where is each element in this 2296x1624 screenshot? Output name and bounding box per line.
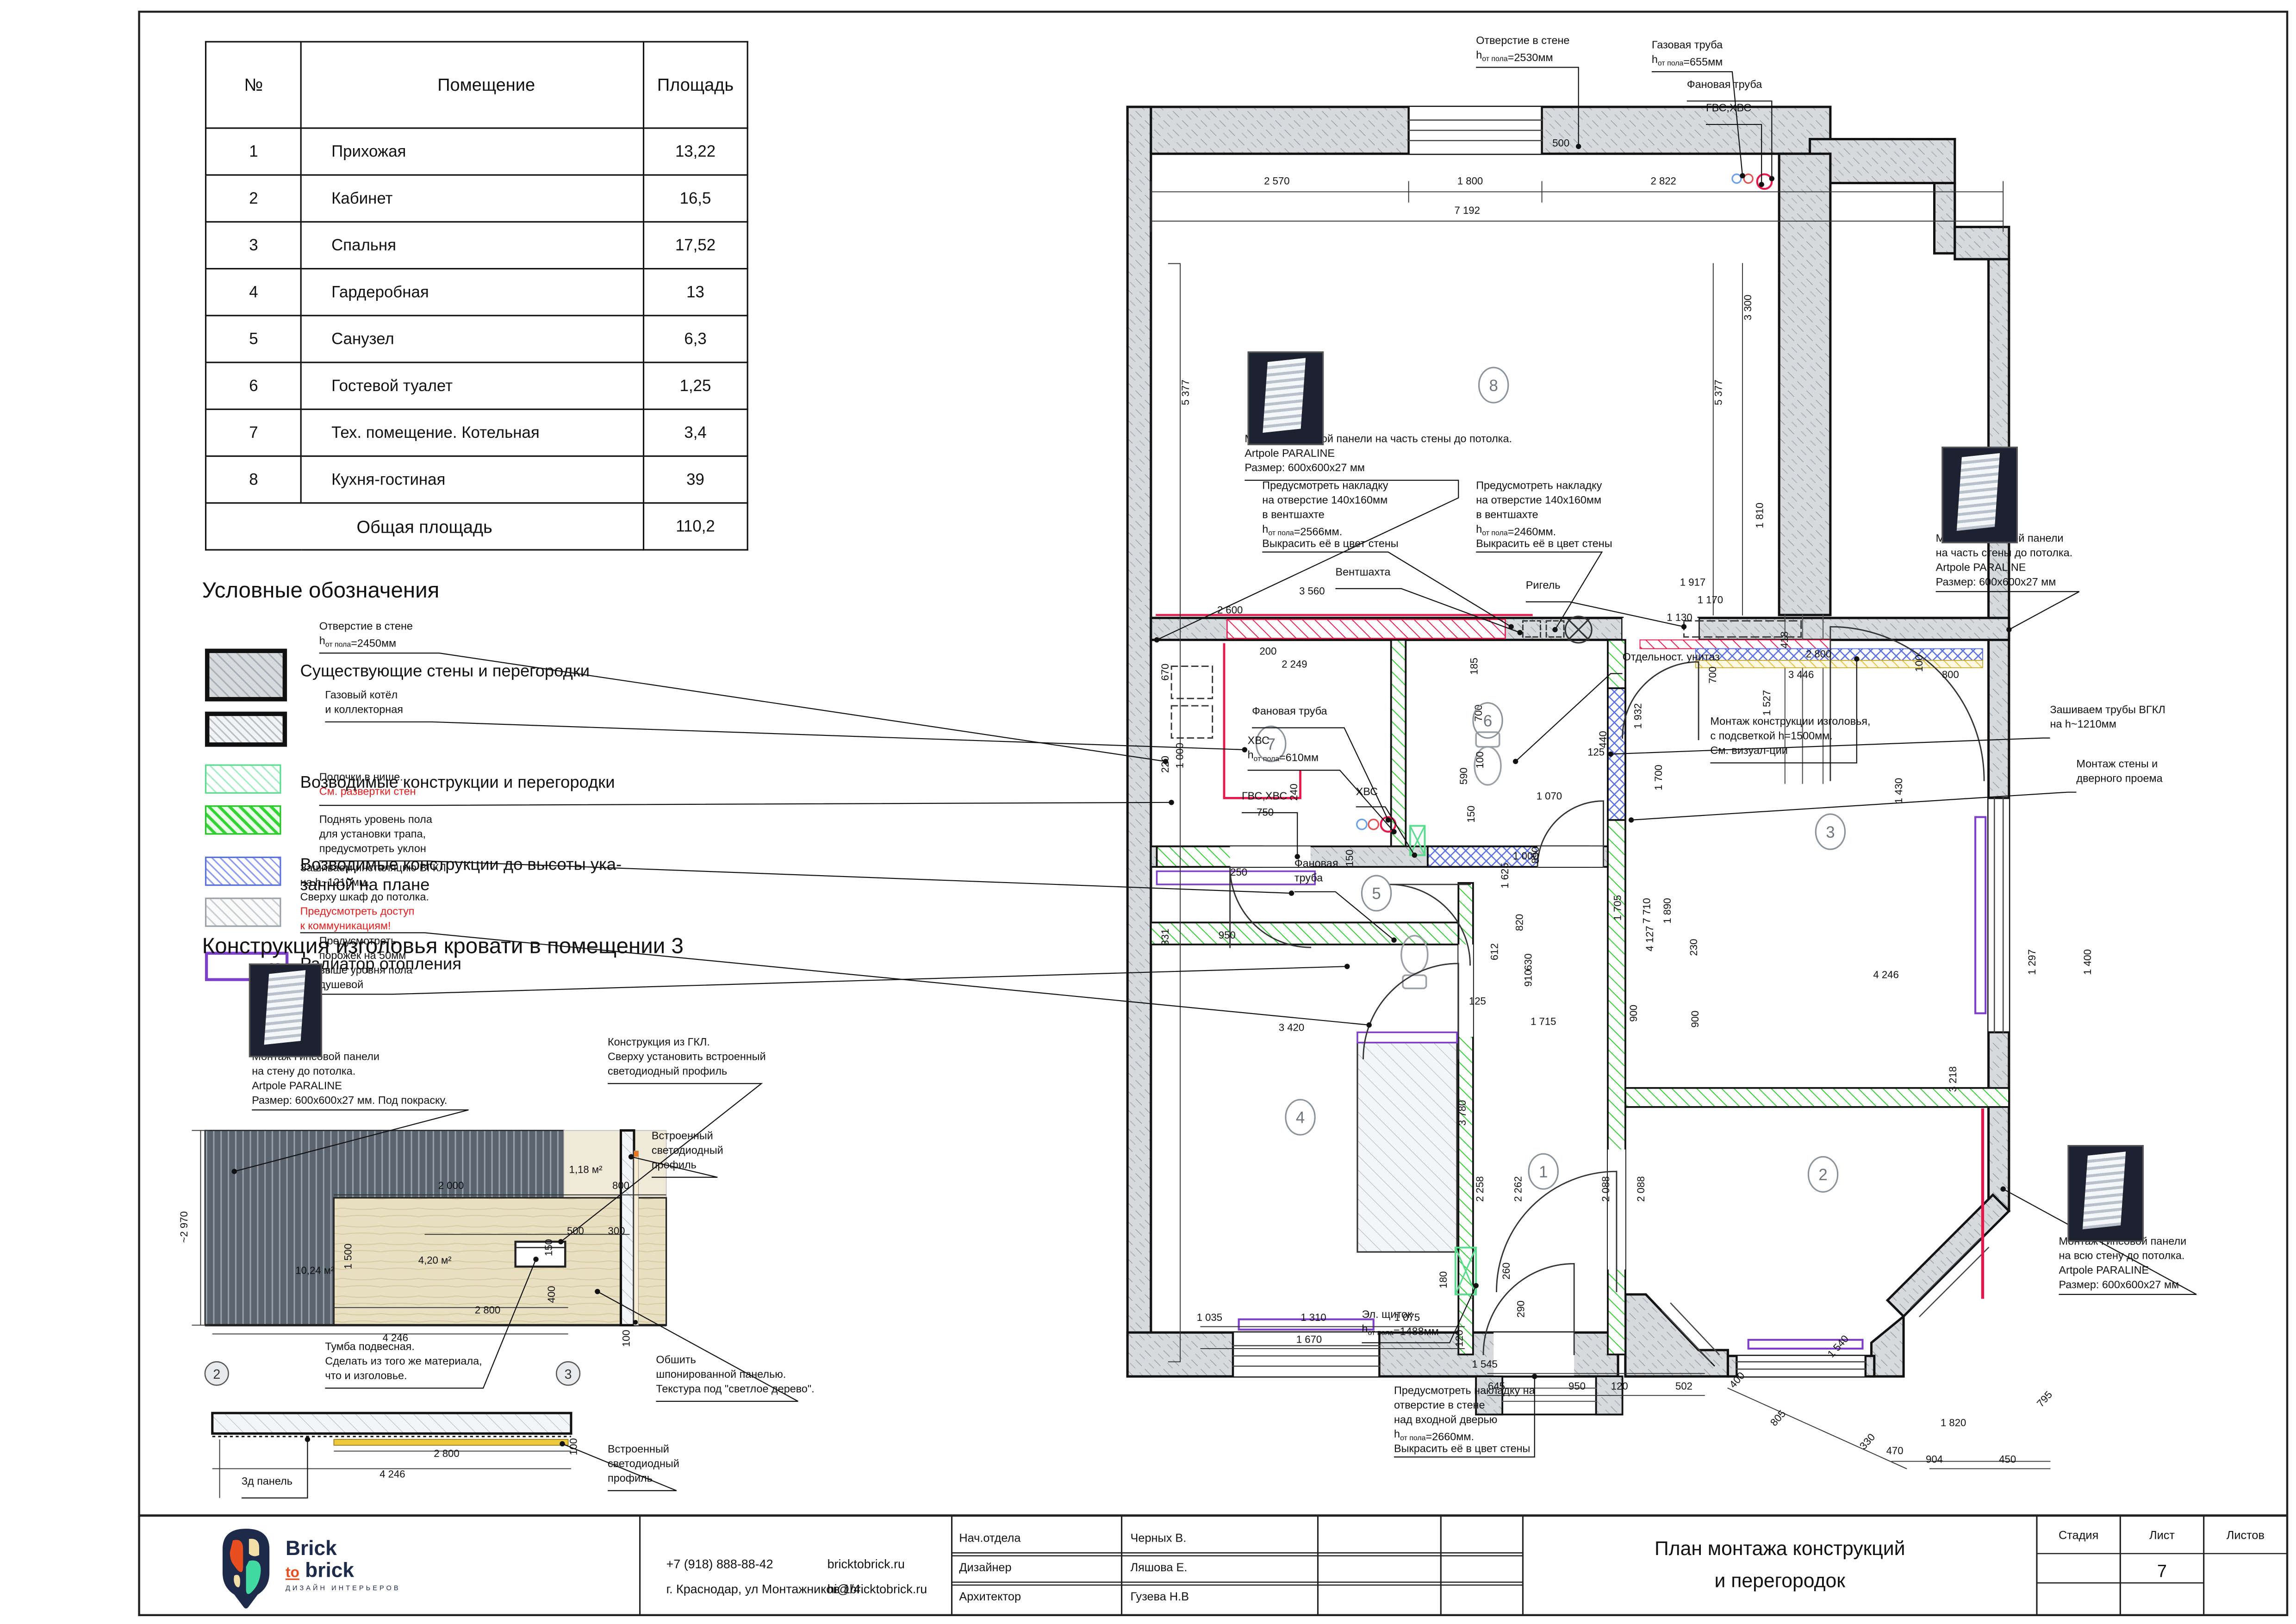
note-leader-dot [305,1437,310,1442]
dim-label: 4,20 м² [418,1254,452,1266]
room-area: 6,3 [643,316,747,362]
dim-label: 220 [1159,756,1171,773]
dim-label: 3 446 [1788,669,1814,680]
dim-label: 500 [1552,137,1569,149]
table-row: 8Кухня-гостиная39 [206,456,748,503]
legend-title: Условные обозначения [202,579,440,604]
dim-label: 250 [1230,866,1247,878]
table-row: 1Прихожая13,22 [206,128,748,175]
room-area: 17,52 [643,222,747,268]
note-leader-dot [1629,817,1634,822]
note-text: Выкрасить её в цвет стены [1476,537,1612,549]
note-text: Artpole PARALINE [252,1079,342,1091]
headboard-section-title: Конструкция изголовья кровати в помещени… [202,934,684,959]
dim-label: 100 [1474,752,1486,769]
dim-label: 7 192 [1455,205,1480,216]
dim-label: 260 [1500,1263,1512,1280]
note-leader-dot [595,1289,600,1294]
note-leader-line [325,722,1244,750]
name-3: Гузева Н.В [1131,1590,1189,1603]
room-name: Гостевой туалет [301,362,643,409]
sheets-label: Листов [2204,1529,2287,1542]
note-leader-dot [2001,1186,2006,1191]
note-text: с подсветкой h=1500мм. [1710,730,1832,742]
dim-label: 1 625 [1499,863,1511,888]
note-text: Выкрасить её в цвет стены [1394,1443,1530,1455]
note-leader-dot [1386,817,1391,822]
note-text: Монтаж конструкции изголовья, [1710,715,1870,727]
note-leader-dot [1513,759,1518,764]
dim-label: 330 [1857,1431,1877,1452]
panel-photo-plan-right [1941,447,2018,543]
dim-label: 2 000 [438,1180,464,1191]
note-text: Конструкция из ГКЛ. [608,1036,710,1048]
dim-label: 2 822 [1651,175,1676,187]
dim-label: 950 [1568,1381,1586,1392]
note-text: что и изголовье. [325,1369,407,1381]
dim-label: 590 [1458,767,1469,784]
dim-label: 900 [1628,1005,1639,1022]
dim-label: 1 705 [1612,895,1623,921]
table-row: 3Спальня17,52 [206,222,748,268]
note-leader-dot [1344,964,1350,969]
dim-label: 1 000 [1174,743,1185,768]
dim-label: 1 310 [1300,1312,1326,1323]
legend-label-new: Возводимые конструкции и перегородки [300,773,769,794]
grid-bubble-number: 3 [565,1367,572,1382]
dim-label: 3 300 [1742,295,1754,320]
note-leader-dot [1769,176,1774,181]
dim-label: 1 000 [1513,850,1538,862]
dim-label: 440 [1597,731,1609,748]
note-leader-dot [1681,624,1686,629]
grid-bubble-number: 2 [213,1367,220,1382]
note-text: Предусмотреть накладку [1476,479,1602,492]
note-text: 3д панель [242,1475,292,1487]
note-leader-dot [1242,747,1247,752]
note-text: Монтаж стены и [2076,758,2158,770]
note-leader-line [1516,673,1623,761]
dim-label: 950 [1219,929,1236,941]
contact-phone: +7 (918) 888-88-42 [666,1556,773,1571]
dim-label: 331 [1159,928,1171,946]
dim-label: 185 [1468,658,1480,675]
dim-label: 910 [1522,970,1534,987]
note-leader-dot [1391,938,1396,943]
note-text: hот пола=2660мм. [1394,1428,1474,1443]
note-text: светодиодный профиль [608,1065,727,1077]
room-area-table: № Помещение Площадь 1Прихожая13,222Кабин… [205,41,748,551]
dim-label: 820 [1513,914,1525,931]
room-area: 13 [643,269,747,316]
note-text: Тумба подвесная. [325,1340,415,1352]
note-text: Сверху установить встроенный [608,1050,766,1062]
floor-plan [1127,107,2050,1468]
table-row: 7Тех. помещение. Котельная3,4 [206,409,748,456]
note-text: hот пола=2530мм [1476,49,1553,63]
note-text: Отдельност. унитаз [1623,651,1720,663]
note-leader-dot [232,1169,237,1174]
table-row: 5Санузел6,3 [206,316,748,362]
note-text: Artpole PARALINE [1936,561,2026,573]
contact-email: hi@bricktobrick.ru [828,1581,927,1596]
panel-photo-plan-bottom-right [2067,1145,2144,1242]
note-text: на стену до потолка. [252,1065,355,1077]
note-text: Сделать из того же материала, [325,1355,482,1367]
note-text: для установки трапа, [319,828,426,840]
note-text: на отверстие 140x160мм [1476,494,1601,506]
logo-subtitle: ДИЗАЙН ИНТЕРЬЕРОВ [286,1585,401,1592]
note-text: hот пола=2566мм. [1262,523,1342,538]
note-text: ХВС [1248,734,1269,746]
room-number: 7 [206,409,302,456]
name-2: Ляшова Е. [1131,1561,1188,1574]
headboard-niche [516,1242,566,1267]
dim-label: 125 [1587,747,1605,758]
note-text: Размер: 600x600х27 мм. Под покраску. [252,1094,447,1106]
note-text: Фановая труба [1687,78,1762,90]
dim-label: 904 [1926,1454,1943,1465]
dim-label: 1 715 [1531,1016,1556,1027]
table-row: 2Кабинет16,5 [206,175,748,222]
dim-label: 3 560 [1299,585,1325,597]
panel-photo-plan-center [1248,351,1324,445]
room-number: 4 [206,269,302,316]
room-name: Прихожая [301,128,643,175]
note-text: Artpole PARALINE [1244,447,1335,459]
dim-label: 450 [1999,1454,2016,1465]
dim-label: 2 088 [1635,1176,1647,1201]
note-text: дверного проема [2076,772,2163,784]
sheet-label: Лист [2120,1529,2203,1542]
dim-label: 400 [546,1286,557,1303]
dim-label: 150 [1465,806,1477,823]
sheet-title-line1: План монтажа конструкций [1655,1537,1905,1559]
legend-swatch-partial-height-1 [205,857,281,886]
room-name: Гардеробная [301,269,643,316]
note-text: Выкрасить её в цвет стены [1262,537,1398,549]
role-1: Нач.отдела [959,1531,1020,1544]
note-text: ГВС,ХВС [1242,790,1287,802]
note-text: над входной дверью [1394,1413,1497,1425]
legend-label-partial-height: Возводимые конструкции до высоты ука- за… [300,855,754,897]
brick-logo-icon [223,1529,269,1608]
logo-to: to [286,1565,299,1581]
table-row: 4Гардеробная13 [206,269,748,316]
dim-label: 1 170 [1698,594,1723,606]
dim-label: 2 800 [1806,648,1831,660]
room-badge-number: 5 [1372,885,1381,903]
room-area: 3,4 [643,409,747,456]
note-leader-dot [1552,627,1557,632]
dim-label: 290 [1515,1300,1527,1318]
brick-logo-text: Brick to brick ДИЗАЙН ИНТЕРЬЕРОВ [286,1537,401,1592]
dim-label: 1 130 [1667,611,1692,623]
room-badge-number: 2 [1818,1166,1827,1184]
note-text: Предусмотреть доступ [300,905,415,917]
dim-label: 795 [2035,1389,2054,1409]
headboard-detail [192,1131,666,1498]
dim-label: 1 670 [1296,1333,1322,1345]
dim-label: 1 917 [1680,577,1705,588]
dim-label: 4 246 [1873,969,1898,980]
note-text: в вентшахте [1262,508,1324,520]
dim-label: 100 [1913,655,1925,672]
dim-label: 900 [1689,1011,1701,1028]
note-text: Фановая [1294,857,1338,869]
dim-label: 1 932 [1632,703,1644,728]
dim-label: 10,24 м² [295,1265,334,1276]
dim-label: 470 [1886,1445,1904,1456]
dim-label: 1 400 [2082,949,2093,975]
note-text: Размер: 600x600x27 мм [1936,576,2056,588]
role-3: Архитектор [959,1590,1021,1603]
note-leader-dot [1412,852,1417,858]
dim-label: 150 [543,1239,554,1256]
panel-photo-headboard [249,964,322,1057]
note-text: Размер: 600x600x27 мм [1244,461,1365,473]
dim-label: 2 262 [1512,1176,1524,1201]
note-text: Газовая труба [1652,38,1723,50]
dim-label: 300 [608,1225,625,1237]
dim-label: 2 800 [475,1304,500,1316]
dim-label: 502 [1675,1381,1692,1392]
note-text: Artpole PARALINE [2059,1264,2149,1276]
room-number: 1 [206,128,302,175]
note-text: Текстура под "светлое дерево". [656,1382,814,1394]
dim-label: 418 [1779,631,1790,648]
legend-label-existing: Существующие стены и перегородки [300,662,740,683]
note-leader-dot [1740,173,1745,178]
room-number: 5 [206,316,302,362]
note-leader-line [319,803,1171,805]
note-text: Встроенный [608,1443,669,1455]
note-leader-dot [1154,637,1159,642]
legend-swatch-partial-height-2 [205,897,281,927]
note-text: душевой [319,978,363,990]
note-text: Ригель [1526,579,1561,591]
dim-label: 800 [1942,669,1959,680]
col-header-number: № [206,42,302,128]
note-text: на часть стены до потолка. [1936,547,2072,559]
legend-label-partial-height-line2: занной на плане [300,877,430,895]
interior-partitions [1151,640,2009,1376]
dim-label: 1 527 [1761,690,1773,716]
note-text: Зашиваем трубы ВГКЛ [2050,703,2165,716]
note-text: Эл. щиток [1362,1308,1412,1320]
name-1: Черных В. [1131,1531,1187,1544]
note-leader-dot [1576,144,1581,149]
note-leader-dot [1517,630,1522,635]
room-badge-number: 8 [1489,377,1498,395]
dim-label: 630 [1522,953,1534,971]
note-text: Размер: 600x600x27 мм [2059,1278,2179,1290]
note-text: Фановая труба [1252,705,1327,717]
note-text: на h~1210мм [2050,718,2116,730]
dim-label: 750 [1257,806,1274,818]
note-leader-dot [1532,1374,1537,1379]
dim-label: 2 258 [1474,1176,1486,1201]
room-number: 3 [206,222,302,268]
note-text: и коллекторная [325,703,403,716]
note-text: hот пола=655мм [1652,53,1723,68]
col-header-room: Помещение [301,42,643,128]
sheet-title-line2: и перегородок [1714,1569,1845,1591]
note-leader-dot [628,1154,634,1159]
dim-label: 4 246 [380,1468,405,1480]
note-text: Предусмотреть накладку на [1394,1384,1536,1396]
dim-label: 7 710 [1641,898,1653,923]
room-number: 6 [206,362,302,409]
dim-label: 240 [1288,784,1300,801]
dim-label: 5 377 [1180,380,1191,405]
dim-label: 1 430 [1893,778,1904,803]
dim-label: 2 570 [1264,175,1289,187]
room-name: Кухня-гостиная [301,456,643,503]
drawing-sheet: 5002 5701 8002 8227 1925 3775 3773 3001 … [0,0,2296,1624]
dim-label: 670 [1159,664,1171,681]
note-text: Обшить [656,1354,696,1366]
note-leader-dot [1854,656,1859,661]
note-text: на отверстие 140x160мм [1262,494,1388,506]
dim-label: 1 070 [1537,790,1562,802]
stage-label: Стадия [2037,1529,2120,1542]
note-text: профиль [652,1158,697,1170]
note-leader-dot [2006,627,2011,632]
table-header-row: № Помещение Площадь [206,42,748,128]
dim-label: 4 127 [1644,926,1655,951]
dim-label: 805 [1768,1408,1788,1428]
dim-label: 1 297 [2026,949,2038,975]
note-leader-dot [1169,800,1174,805]
legend-swatch-new-1 [205,765,281,794]
dim-label: 5 377 [1713,380,1724,405]
note-leader-dot [1367,1022,1372,1027]
note-leader-dot [533,1257,538,1262]
dim-label: 100 [620,1330,632,1347]
note-leader-dot [1759,182,1764,187]
note-text: ГВС,ХВС [1706,101,1751,113]
dim-label: 230 [1688,939,1699,956]
dim-label: 120 [1611,1381,1628,1392]
dim-label: 1 545 [1472,1358,1498,1370]
dim-label: 180 [1437,1271,1449,1288]
dim-label: 2 088 [1600,1176,1612,1201]
note-text: на всю стену до потолка. [2059,1250,2184,1262]
sheet-title: План монтажа конструкций и перегородок [1523,1533,2037,1597]
room-area: 16,5 [643,175,747,222]
dim-label: 2 249 [1282,659,1307,670]
dim-label: 612 [1489,943,1500,960]
sheet-number: 7 [2120,1561,2203,1581]
room-name: Тех. помещение. Котельная [301,409,643,456]
col-header-area: Площадь [643,42,747,128]
note-text: отверстие в стене [1394,1399,1485,1411]
note-text: Встроенный [652,1130,713,1142]
role-2: Дизайнер [959,1561,1011,1574]
note-text: Поднять уровень пола [319,813,433,825]
room-number: 2 [206,175,302,222]
dim-label: 1 035 [1197,1312,1222,1323]
note-leader-dot [1474,1283,1479,1288]
dim-label: 1 500 [342,1244,354,1269]
table-total-row: Общая площадь 110,2 [206,503,748,550]
dim-label: 200 [1259,645,1276,657]
table-row: 6Гостевой туалет1,25 [206,362,748,409]
note-text: Газовый котёл [325,689,398,701]
dim-label: 2 800 [434,1448,459,1459]
dim-label: 150 [1344,850,1355,867]
note-leader-dot [1391,829,1396,834]
legend-swatch-existing-1 [205,649,287,702]
note-leader-dot [1289,890,1294,896]
note-text: hот пола=2450мм [319,635,396,649]
room-badge-number: 1 [1539,1163,1548,1181]
note-leader-dot [558,1239,563,1244]
dim-label: 120 [1454,1330,1465,1347]
note-text: труба [1294,871,1323,884]
note-text: предусмотреть уклон [319,842,426,854]
room-number: 8 [206,456,302,503]
room-name: Спальня [301,222,643,268]
note-text: ХВС [1356,785,1378,797]
legend-swatch-existing-2 [205,712,287,747]
dim-label: 1 800 [1457,175,1483,187]
legend-swatch-new-2 [205,805,281,834]
room-badge-number: 3 [1826,823,1835,841]
note-text: светодиодный [652,1144,723,1156]
total-value: 110,2 [643,503,747,550]
room-badge-number: 4 [1296,1109,1305,1127]
dim-label: 1 810 [1754,503,1765,528]
dim-label: ~2 970 [178,1211,190,1243]
logo-line2: brick [305,1557,354,1581]
note-text: шпонированной панелью. [656,1368,786,1380]
dim-label: 3 420 [1279,1021,1304,1033]
total-label: Общая площадь [206,503,643,550]
room-name: Кабинет [301,175,643,222]
note-text: hот пола=2460мм. [1476,523,1556,538]
room-name: Санузел [301,316,643,362]
dim-label: 125 [1469,995,1486,1007]
note-text: Отверстие в стене [319,620,413,632]
room-area: 1,25 [643,362,747,409]
dim-label: 3 780 [1456,1100,1468,1126]
dim-label: 1 820 [1941,1417,1966,1429]
note-text: к коммуникациям! [300,920,391,932]
note-text: См. визуал-ции [1710,744,1787,756]
note-text: Отверстие в стене [1476,34,1569,46]
note-text: Предусмотреть накладку [1262,479,1388,492]
legend-label-partial-height-line1: Возводимые конструкции до высоты ука- [300,857,622,874]
note-leader-dot [560,1441,565,1446]
note-text: светодиодный [608,1457,679,1469]
note-text: Вентшахта [1335,566,1391,578]
dim-label: 700 [1707,666,1718,684]
dim-label: 1 700 [1653,765,1664,790]
room-area: 13,22 [643,128,747,175]
note-leader-dot [1608,752,1613,757]
contact-site: bricktobrick.ru [828,1556,905,1571]
note-leader-dot [1163,759,1168,764]
logo-line1: Brick [286,1536,337,1560]
room-badge-number: 6 [1483,712,1492,730]
room-area: 39 [643,456,747,503]
dim-label: 1 890 [1661,898,1673,923]
note-text: в вентшахте [1476,508,1538,520]
dim-label: 3 218 [1947,1066,1959,1092]
dim-label: 1,18 м² [569,1164,603,1175]
